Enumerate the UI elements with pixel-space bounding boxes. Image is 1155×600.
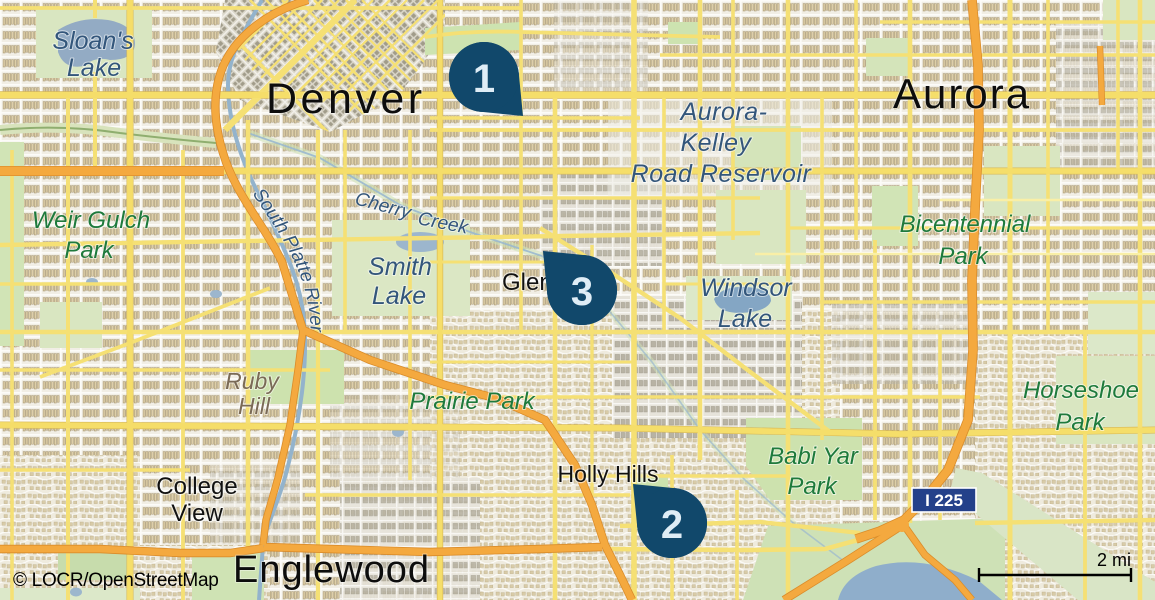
svg-text:Horseshoe: Horseshoe: [1023, 377, 1139, 404]
svg-text:Denver: Denver: [266, 75, 426, 123]
svg-text:Park: Park: [787, 473, 838, 500]
svg-text:View: View: [171, 500, 223, 527]
svg-text:Babi Yar: Babi Yar: [768, 443, 859, 470]
svg-text:Bicentennial: Bicentennial: [900, 211, 1031, 238]
svg-text:Windsor: Windsor: [700, 274, 793, 302]
svg-text:Prairie Park: Prairie Park: [409, 388, 536, 415]
svg-text:Aurora: Aurora: [893, 70, 1031, 117]
svg-text:Park: Park: [938, 243, 989, 270]
svg-text:I 225: I 225: [925, 491, 963, 510]
svg-text:Englewood: Englewood: [233, 549, 430, 591]
svg-text:Lake: Lake: [372, 282, 426, 310]
svg-text:Kelley: Kelley: [680, 129, 752, 157]
svg-text:Ruby: Ruby: [225, 368, 280, 394]
svg-text:Sloan's: Sloan's: [52, 27, 133, 55]
svg-text:Hill: Hill: [238, 393, 271, 419]
svg-text:Weir Gulch: Weir Gulch: [32, 207, 150, 234]
svg-text:Lake: Lake: [718, 305, 772, 333]
svg-text:Road Reservoir: Road Reservoir: [631, 160, 813, 188]
svg-text:2: 2: [661, 503, 683, 547]
svg-text:College: College: [156, 473, 237, 500]
svg-text:3: 3: [571, 270, 593, 314]
svg-text:1: 1: [473, 57, 495, 101]
svg-text:Park: Park: [1055, 409, 1106, 436]
svg-text:Lake: Lake: [67, 54, 121, 82]
svg-text:Holly Hills: Holly Hills: [558, 461, 659, 487]
svg-text:Aurora-: Aurora-: [679, 98, 768, 126]
svg-text:Park: Park: [64, 237, 115, 264]
svg-text:2 mi: 2 mi: [1097, 550, 1131, 570]
svg-text:Smith: Smith: [368, 253, 432, 281]
svg-text:© LOCR/OpenStreetMap: © LOCR/OpenStreetMap: [13, 570, 218, 591]
